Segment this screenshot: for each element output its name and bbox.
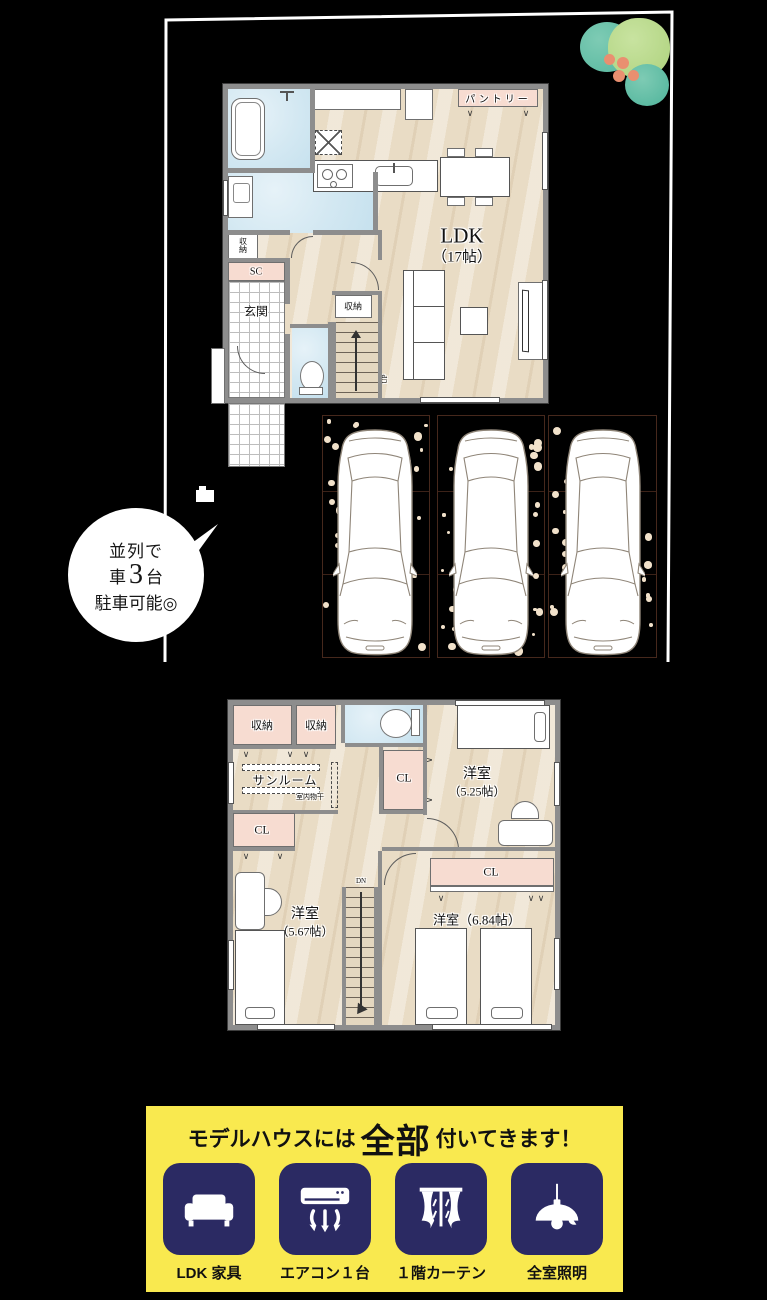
gravel-dot	[441, 625, 445, 629]
wall	[345, 743, 427, 747]
sofa-cushion-line	[413, 306, 444, 307]
wall	[423, 705, 427, 815]
banner-title: モデルハウスには 全部 付いてきます！	[146, 1112, 623, 1164]
porch-step	[211, 348, 225, 404]
floor-hatch	[315, 130, 342, 155]
light-tile	[511, 1163, 603, 1255]
window-mark	[420, 397, 500, 403]
gravel-dot	[645, 533, 652, 540]
second-floor-plan: 収納 収納 ∨ ∨ ∨ サンルーム 室内物干 CL ∨ ∨ 洋室 （5	[228, 700, 560, 1030]
shelf-mark: ∨	[523, 109, 530, 119]
closet-right-label: CL	[483, 865, 498, 880]
refrigerator	[405, 89, 433, 120]
tree-berry	[604, 54, 615, 65]
wall	[292, 705, 296, 745]
shoe-closet-label: SC	[250, 267, 262, 278]
wall	[373, 172, 378, 233]
sofa-cushion-line	[413, 342, 444, 343]
storage-2f-a-label: 収納	[251, 717, 273, 733]
shelf-mark: ∨	[287, 750, 294, 760]
closet-left-label: CL	[254, 823, 269, 838]
closet-front	[430, 886, 554, 892]
bed	[415, 928, 467, 1025]
toilet-tank-1f	[299, 387, 323, 395]
gravel-dot	[534, 462, 543, 471]
window-mark	[432, 1024, 552, 1030]
burner	[330, 181, 337, 188]
car-top-view	[449, 424, 533, 658]
burner	[322, 169, 333, 180]
wall	[378, 230, 382, 260]
banner-title-post: 付いてきます！	[436, 1123, 582, 1153]
gravel-dot	[323, 602, 329, 608]
sofa-icon	[178, 1178, 240, 1240]
bubble-unit-text: 台	[146, 568, 163, 587]
bubble-line2: 車3台	[109, 563, 163, 588]
model-house-banner: モデルハウスには 全部 付いてきます！ LDK 家具	[146, 1106, 623, 1292]
coffee-table	[460, 307, 488, 335]
pillow	[426, 1007, 458, 1019]
stairs-dn-label: DN	[356, 877, 366, 885]
indoor-drying-label: 室内物干	[296, 792, 324, 802]
tree-berry	[628, 70, 639, 81]
wall	[332, 291, 380, 295]
gravel-dot	[553, 427, 561, 435]
wall	[233, 745, 336, 749]
burner	[336, 169, 347, 180]
gravel-dot	[552, 528, 558, 534]
gravel-dot	[644, 561, 651, 568]
window-mark	[554, 762, 560, 806]
wall	[379, 747, 383, 814]
gravel-dot	[536, 608, 543, 615]
wall	[328, 322, 332, 398]
gravel-dot	[424, 424, 428, 428]
shelf-mark: ∨	[528, 894, 535, 904]
utility-box-cap	[199, 486, 206, 490]
faucet	[393, 163, 395, 173]
sunroom-label: サンルーム	[253, 772, 318, 789]
stairs-up-label: UP	[381, 375, 389, 384]
wall	[379, 810, 425, 814]
speech-bubble: 並列で 車3台 駐車可能◎	[68, 508, 204, 642]
kitchen-sink	[375, 166, 413, 186]
gravel-dot	[441, 569, 444, 572]
tv	[522, 290, 529, 353]
tree-berry	[617, 57, 629, 69]
desk	[498, 820, 553, 846]
dining-chair	[475, 148, 493, 157]
wall	[341, 705, 345, 743]
banner-item-furniture: LDK 家具	[163, 1163, 255, 1283]
bathtub-inner	[235, 102, 261, 156]
banner-item-curtain: １階カーテン	[395, 1163, 487, 1283]
bed	[480, 928, 532, 1025]
kitchen-upper-counter	[313, 89, 401, 110]
gravel-dot	[327, 419, 331, 423]
gravel-dot	[418, 643, 426, 651]
window-mark	[228, 762, 234, 804]
wall	[290, 324, 332, 328]
car-top-view	[333, 424, 417, 658]
light-icon	[526, 1178, 588, 1240]
wall	[228, 230, 290, 235]
sofa	[403, 270, 445, 380]
sunroom-divider	[331, 762, 338, 808]
pillow	[534, 712, 546, 742]
shelf-mark: ∨	[467, 109, 474, 119]
stairs-2f-arrow	[360, 892, 362, 1010]
storage-1f-center-label: 収納	[344, 300, 362, 313]
gravel-dot	[646, 593, 650, 597]
wall	[228, 168, 310, 173]
banner-title-emphasis: 全部	[361, 1114, 431, 1163]
shelf-mark: ∨	[243, 750, 250, 760]
banner-item-label: 全室照明	[511, 1262, 603, 1283]
room567-size: （5.67帖）	[276, 923, 333, 940]
tree-berry	[613, 70, 625, 82]
gravel-dot	[533, 512, 538, 517]
shelf-mark: ∨	[243, 852, 250, 862]
window-mark	[542, 280, 548, 360]
gravel-dot	[420, 448, 423, 451]
wall	[310, 89, 315, 173]
furniture-tile	[163, 1163, 255, 1255]
desk	[235, 872, 265, 930]
aircon-icon	[294, 1178, 356, 1240]
room567-label: 洋室	[291, 903, 319, 923]
window-mark	[228, 940, 234, 990]
bubble-line1: 並列で	[109, 537, 163, 562]
bed	[235, 930, 285, 1025]
gravel-dot	[442, 513, 445, 516]
window-mark	[554, 938, 560, 990]
gravel-dot	[649, 623, 653, 627]
utility-box	[196, 490, 214, 502]
shelf-mark: ∨	[438, 894, 445, 904]
window-mark	[223, 180, 228, 216]
window-mark	[542, 132, 548, 190]
sofa-backrest	[404, 271, 414, 379]
gravel-dot	[535, 502, 541, 508]
banner-item-label: LDK 家具	[163, 1262, 255, 1283]
flyer-page: 収納 SC 玄関 UP 収納 パントリー	[0, 0, 767, 1300]
bubble-line3: 駐車可能◎	[95, 589, 178, 614]
room525-label: 洋室	[463, 763, 491, 783]
toilet-bowl-2f	[380, 709, 412, 738]
bathtub	[231, 98, 265, 160]
banner-item-aircon: エアコン１台	[279, 1163, 371, 1283]
pillow	[491, 1007, 523, 1019]
gravel-dot	[552, 491, 559, 498]
gravel-dot	[324, 436, 331, 443]
wall	[233, 847, 295, 851]
gravel-dot	[550, 608, 558, 616]
window-mark	[257, 1024, 335, 1030]
room684-label: 洋室（6.84帖）	[433, 910, 521, 929]
gravel-dot	[533, 443, 542, 452]
storage-2f-b-label: 収納	[305, 717, 327, 733]
wall	[382, 847, 555, 851]
bubble-car-text: 車	[109, 568, 126, 587]
stairs-1f-arrow	[355, 336, 357, 391]
shower-icon-stem	[286, 91, 288, 101]
closet-mid-label: CL	[396, 771, 411, 786]
bubble-count: 3	[126, 559, 146, 590]
room525-size: （5.25帖）	[448, 783, 505, 800]
dining-chair	[475, 197, 493, 206]
toilet-tank-2f	[411, 709, 420, 736]
dining-chair	[447, 148, 465, 157]
shelf-mark: ∨	[538, 894, 545, 904]
stove	[317, 164, 353, 188]
ldk-size-label: （17帖）	[432, 246, 492, 267]
gravel-dot	[533, 573, 539, 579]
first-floor-plan: 収納 SC 玄関 UP 収納 パントリー	[223, 84, 548, 403]
banner-item-label: １階カーテン	[395, 1262, 487, 1283]
shelf-mark: ∨	[277, 852, 284, 862]
entrance-label: 玄関	[244, 303, 268, 320]
window-mark	[455, 700, 545, 706]
banner-title-pre: モデルハウスには	[188, 1123, 356, 1153]
pillow	[245, 1007, 275, 1019]
car-top-view	[561, 424, 645, 658]
dining-table	[440, 157, 510, 197]
wall	[313, 230, 378, 235]
banner-item-light: 全室照明	[511, 1163, 603, 1283]
wall	[228, 258, 285, 262]
wall	[378, 291, 382, 398]
wall	[285, 334, 290, 398]
shelf-mark: ∨	[303, 750, 310, 760]
gravel-dot	[417, 516, 421, 520]
dining-chair	[447, 197, 465, 206]
storage-1f-left-label: 収納	[238, 237, 249, 253]
bed	[457, 705, 550, 749]
wash-basin-bowl	[233, 183, 250, 203]
gravel-dot	[533, 540, 540, 547]
wash-basin	[228, 176, 253, 218]
curtain-icon	[410, 1178, 472, 1240]
curtain-tile	[395, 1163, 487, 1255]
aircon-tile	[279, 1163, 371, 1255]
wall	[378, 851, 382, 1025]
pantry-label: パントリー	[465, 91, 531, 106]
entrance-hall	[228, 281, 285, 398]
banner-item-label: エアコン１台	[279, 1262, 371, 1283]
drying-pipe	[242, 764, 320, 771]
entrance-porch	[228, 403, 285, 467]
wall	[285, 258, 290, 304]
